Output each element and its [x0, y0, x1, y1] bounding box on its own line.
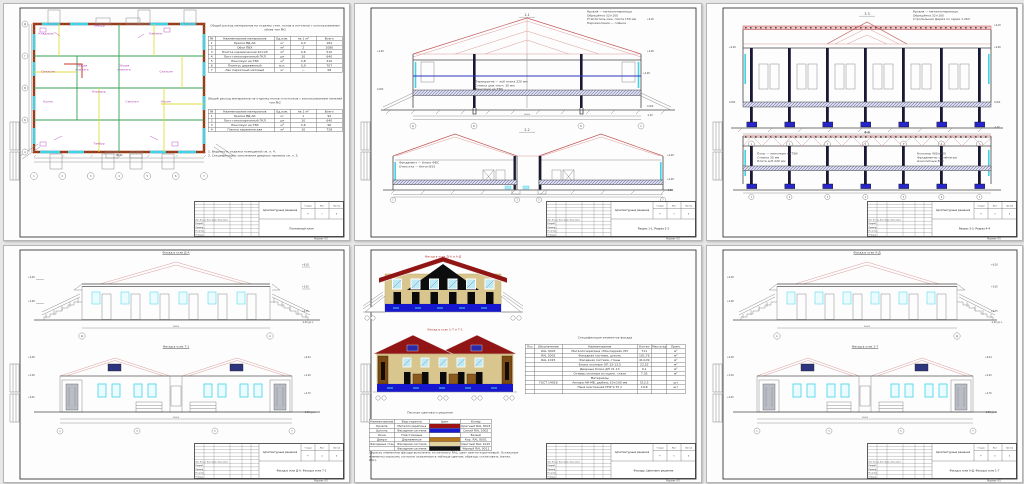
- svg-text:Б: Б: [24, 118, 26, 122]
- svg-text:Провер.: Провер.: [196, 469, 205, 471]
- materials-table-1: №Наименование материаловЕд.изм.на 1 м²Вс…: [208, 36, 343, 73]
- elevation-2-title: Фасад в осях 7-1: [140, 345, 212, 349]
- color-passport-table: НаименованиеВид отделкиЦветКолерКровляМе…: [369, 419, 492, 451]
- svg-text:Листов: Листов: [333, 205, 340, 207]
- svg-text:А: А: [24, 150, 26, 154]
- margin-stamps: [361, 122, 370, 180]
- sections-drawing: 3-3: [707, 4, 1022, 240]
- svg-text:+5,05: +5,05: [991, 286, 998, 289]
- porch-steps: [136, 402, 216, 412]
- margin-stamps: [10, 122, 19, 180]
- svg-text:Н.контр.: Н.контр.: [196, 473, 205, 475]
- title-block: Изм. Кол.уч. Лист №док. Подп. Дата Разра…: [546, 443, 696, 479]
- svg-text:+2,98: +2,98: [643, 72, 650, 75]
- svg-text:Стадия: Стадия: [977, 447, 984, 449]
- svg-text:Стадия: Стадия: [977, 205, 984, 207]
- svg-text:Утверд.: Утверд.: [869, 234, 877, 236]
- svg-text:Н.контр.: Н.контр.: [196, 231, 205, 233]
- svg-text:Листов: Листов: [685, 447, 692, 449]
- facade-spec-table: ПозОбозначениеНаименованиеКол-воМасса ед…: [525, 344, 686, 394]
- section-dim: 24000: [524, 114, 531, 116]
- margin-stamps: [713, 364, 722, 422]
- porch-steps: [827, 402, 903, 412]
- sheet-sections-3-4: 3-3: [706, 3, 1023, 241]
- title-block: Изм. Кол.уч. Лист №док. Подп. Дата Разра…: [194, 201, 344, 237]
- svg-text:+4,48: +4,48: [28, 356, 35, 359]
- svg-text:Утверд.: Утверд.: [196, 476, 204, 478]
- svg-text:Провер.: Провер.: [196, 227, 205, 229]
- room-label: Тамбур: [88, 24, 110, 28]
- margin-stamps: [713, 122, 722, 180]
- svg-text:Разраб.: Разраб.: [196, 464, 204, 467]
- svg-text:Стадия: Стадия: [656, 447, 663, 449]
- elevation-1-title: Фасад в осях А-Д: [831, 251, 903, 255]
- format-label: Формат А3: [314, 238, 328, 240]
- section-1-ground: [381, 93, 675, 114]
- foundation-note: Фундамент — блоки ФБС Отмостка — бетон В…: [399, 161, 454, 169]
- section-4-axes: 12 34 56 7: [749, 194, 982, 199]
- svg-text:Разраб.: Разраб.: [869, 464, 877, 467]
- sheet-elevations-ad: 36000 АД +4,48+2,98 +6,18+5,05 +0,75-1,2…: [706, 245, 1023, 483]
- svg-text:36000: 36000: [173, 326, 180, 328]
- svg-text:Утверд.: Утверд.: [869, 476, 877, 478]
- svg-text:+2,98: +2,98: [727, 300, 734, 303]
- plan-notes: 1. Ведомость отделки помещений см. л. 4.…: [208, 150, 342, 158]
- svg-text:Изм. Кол.уч. Лист №док. Подп.: Изм. Кол.уч. Лист №док. Подп. Дата: [869, 460, 901, 463]
- room-label: Кабинет: [145, 32, 167, 36]
- section-3-roof: [743, 22, 991, 44]
- svg-text:-1,20 ур.з.: -1,20 ур.з.: [991, 321, 1003, 324]
- section-label-2: 4-4: [864, 131, 869, 135]
- format-label: Формат А3: [666, 238, 680, 240]
- svg-text:Архитектурные решения: Архитектурные решения: [615, 450, 650, 454]
- svg-text:Поэтажный план: Поэтажный план: [289, 227, 313, 231]
- room-label: Кухня: [155, 100, 177, 104]
- title-block: Изм. Кол.уч. Лист №док. Подп. Дата Разра…: [194, 443, 344, 479]
- elevation-marks: +6,18+4,48 +2,980,000 -1,20 +4,480,000: [377, 18, 654, 117]
- svg-text:Листов: Листов: [333, 447, 340, 449]
- svg-text:Н.контр.: Н.контр.: [548, 231, 557, 233]
- stairs-right: [501, 292, 523, 312]
- svg-text:+4,48: +4,48: [667, 154, 674, 157]
- side-stairs-right: [270, 294, 310, 320]
- svg-text:Листов: Листов: [1006, 205, 1013, 207]
- axis-grid-bottom: 12 34 56 7: [31, 173, 208, 180]
- svg-text:Д: Д: [412, 125, 414, 128]
- svg-text:А: А: [269, 334, 271, 338]
- svg-text:-1,20 ур.з.: -1,20 ур.з.: [304, 411, 316, 414]
- room-label: Спальня: [37, 70, 59, 74]
- svg-text:-1,20: -1,20: [667, 189, 673, 192]
- svg-text:36000: 36000: [173, 417, 180, 419]
- floor-note: Полы — линолеум на ТЗИ Стяжка 30 мм Плит…: [757, 152, 817, 163]
- svg-text:Разраб.: Разраб.: [196, 222, 204, 225]
- svg-text:+4,20: +4,20: [304, 374, 311, 377]
- svg-text:Утверд.: Утверд.: [196, 234, 204, 236]
- svg-text:0,000: 0,000: [729, 101, 736, 104]
- svg-text:Д: Д: [24, 22, 26, 26]
- svg-text:Провер.: Провер.: [869, 469, 878, 471]
- svg-text:Архитектурные решения: Архитектурные решения: [263, 450, 298, 454]
- svg-text:+6,44: +6,44: [304, 356, 311, 359]
- svg-text:+4,48: +4,48: [727, 356, 734, 359]
- stairs-left: [363, 292, 385, 312]
- side-stairs-left: [42, 294, 82, 320]
- svg-text:+0,45: +0,45: [28, 396, 35, 399]
- svg-text:Н.контр.: Н.контр.: [869, 231, 878, 233]
- format-label: Формат А3: [314, 480, 328, 482]
- color-facade-2: [373, 335, 517, 400]
- sheet-floor-plan: 36000 12 34 56 7 ДГ ВБ А: [3, 3, 350, 241]
- svg-text:-1,20 ур.з.: -1,20 ур.з.: [302, 321, 314, 324]
- svg-text:Провер.: Провер.: [548, 227, 557, 229]
- room-label: Тамбур: [88, 142, 110, 146]
- svg-text:Фасад в осях Д-А. Фасад в осях: Фасад в осях Д-А. Фасад в осях 7-1: [277, 469, 327, 473]
- svg-text:Фасады. Цветовое решение: Фасады. Цветовое решение: [634, 469, 674, 473]
- elevation-2: 36000 13 57 +4,48+3,09 +0,45 +6,44+4,20 …: [28, 356, 320, 434]
- drawing-set-canvas: 36000 12 34 56 7 ДГ ВБ А: [0, 0, 1024, 484]
- svg-text:Разраб.: Разраб.: [869, 222, 877, 225]
- svg-text:Стадия: Стадия: [304, 447, 311, 449]
- section-label-2: 2-2: [524, 128, 529, 132]
- materials-table-2: №Наименование материаловЕд.изм.на 1 м²Вс…: [208, 109, 343, 132]
- section-2-roof: [393, 134, 663, 156]
- room-label: Коридор: [88, 90, 110, 94]
- svg-text:Архитектурные решения: Архитектурные решения: [936, 208, 971, 212]
- svg-text:+4,48: +4,48: [647, 50, 654, 53]
- svg-text:Утверд.: Утверд.: [548, 476, 556, 478]
- column-note: Колонны 400×400 Фундаменты столбчатые мо…: [917, 152, 977, 163]
- elevation-2: 36000 13 57 +4,48+3,09 +0,45 +6,44+4,20 …: [727, 356, 997, 434]
- roof-note: Кровля — металлочерепица Обрешётка 32×10…: [587, 10, 662, 25]
- svg-text:36000: 36000: [862, 417, 869, 419]
- svg-text:Разрез 1-1. Разрез 2-2: Разрез 1-1. Разрез 2-2: [638, 227, 669, 231]
- side-stairs-right: [957, 294, 995, 320]
- svg-text:Изм. Кол.уч. Лист №док. Подп.: Изм. Кол.уч. Лист №док. Подп. Дата: [548, 218, 580, 221]
- elevation-1: 36000 АД +4,48+2,98 +6,18+5,05 +0,75-1,2…: [727, 262, 1003, 339]
- margin-stamps: [10, 364, 19, 422]
- elevation-1: 36000 ДА +4,48+2,98 +6,18+5,05 +0,75-1,2…: [28, 262, 320, 339]
- svg-text:+2,98: +2,98: [667, 178, 674, 181]
- svg-text:Архитектурные решения: Архитектурные решения: [936, 450, 971, 454]
- materials-table-2-title: Общий расход материалов на отделку полов…: [207, 97, 343, 105]
- sheet-elevations-da: 36000 ДА +4,48+2,98 +6,18+5,05 +0,75-1,2…: [3, 245, 350, 483]
- total-dimension: 36000: [116, 154, 124, 157]
- room-label: Кухня: [37, 100, 59, 104]
- svg-text:+5,05: +5,05: [302, 286, 309, 289]
- svg-text:Листов: Листов: [685, 205, 692, 207]
- foundation-pads: [747, 122, 985, 127]
- svg-text:0,000: 0,000: [647, 105, 654, 108]
- svg-text:Разрез 3-3. Разрез 4-4: Разрез 3-3. Разрез 4-4: [959, 227, 990, 231]
- svg-text:Изм. Кол.уч. Лист №док. Подп.: Изм. Кол.уч. Лист №док. Подп. Дата: [196, 218, 228, 221]
- svg-text:36000: 36000: [864, 326, 871, 328]
- svg-text:Разраб.: Разраб.: [548, 464, 556, 467]
- section-2-ground: [383, 190, 673, 194]
- svg-text:+6,18: +6,18: [994, 24, 1001, 27]
- room-label: Общая комната: [113, 64, 135, 72]
- svg-text:Стадия: Стадия: [304, 205, 311, 207]
- spec-table-title: Спецификация элементов фасада: [525, 336, 685, 340]
- svg-text:Д: Д: [956, 334, 958, 338]
- svg-text:+4,48: +4,48: [28, 276, 35, 279]
- svg-text:Архитектурные решения: Архитектурные решения: [263, 208, 298, 212]
- title-block: Изм. Кол.уч. Лист №док. Подп. Дата Разра…: [546, 201, 696, 237]
- svg-text:+3,09: +3,09: [28, 374, 35, 377]
- side-stairs-left: [739, 294, 777, 320]
- room-label: Кладовая: [35, 32, 57, 36]
- svg-text:+0,75: +0,75: [302, 310, 309, 313]
- svg-text:+2,70: +2,70: [304, 392, 311, 395]
- sheet-sections-1-2: 1-1: [354, 3, 702, 241]
- room-label: Спальня: [155, 70, 177, 74]
- sections-drawing: 1-1: [355, 4, 701, 240]
- svg-text:+4,48: +4,48: [727, 276, 734, 279]
- svg-text:Д: Д: [81, 334, 83, 338]
- section-label-1: 3-3: [864, 12, 869, 16]
- elevation-1-title: Фасад в осях Д-А: [140, 251, 212, 255]
- svg-text:Изм. Кол.уч. Лист №док. Подп.: Изм. Кол.уч. Лист №док. Подп. Дата: [869, 218, 901, 221]
- axis-grid-left: ДГ ВБ А: [22, 21, 28, 155]
- svg-text:0,000: 0,000: [377, 88, 384, 91]
- svg-text:0,000: 0,000: [994, 101, 1001, 104]
- svg-text:Изм. Кол.уч. Лист №док. Подп.: Изм. Кол.уч. Лист №док. Подп. Дата: [548, 460, 580, 463]
- svg-text:+6,18: +6,18: [302, 264, 309, 267]
- title-block: Изм. Кол.уч. Лист №док. Подп. Дата Разра…: [867, 201, 1017, 237]
- facade-2-title: Фасад в осях 1-7 и 7-1: [395, 328, 495, 332]
- format-label: Формат А3: [987, 238, 1001, 240]
- room-label: Общая комната: [71, 64, 93, 72]
- elevations-drawing: 36000 ДА +4,48+2,98 +6,18+5,05 +0,75-1,2…: [4, 246, 349, 482]
- facade-note: Окраску элементов фасада выполнять по ка…: [369, 451, 519, 462]
- svg-text:Н.контр.: Н.контр.: [548, 473, 557, 475]
- svg-text:Листов: Листов: [1006, 447, 1013, 449]
- svg-text:Провер.: Провер.: [869, 227, 878, 229]
- svg-text:+2,70: +2,70: [985, 392, 992, 395]
- color-passport-title: Паспорт цветового решения: [369, 411, 491, 415]
- title-block: Изм. Кол.уч. Лист №док. Подп. Дата Разра…: [867, 443, 1017, 479]
- svg-text:+4,20: +4,20: [985, 374, 992, 377]
- svg-text:-1,20 ур.з.: -1,20 ур.з.: [985, 411, 997, 414]
- svg-text:А: А: [776, 334, 778, 338]
- svg-text:Архитектурные решения: Архитектурные решения: [615, 208, 650, 212]
- roof-note: Кровля — металлочерепица Обрешётка 32×10…: [913, 10, 988, 21]
- floor-note: Перекрытие — ж/б плита 220 мм Стяжка цем…: [475, 80, 550, 91]
- svg-text:+4,48: +4,48: [729, 46, 736, 49]
- svg-text:+6,18: +6,18: [991, 264, 998, 267]
- svg-text:-1,20: -1,20: [994, 126, 1000, 129]
- svg-text:-1,20: -1,20: [647, 114, 653, 117]
- svg-text:+4,48: +4,48: [994, 46, 1001, 49]
- facade-1-title: Фасад в осях Д-А и А-Д: [393, 255, 493, 259]
- svg-text:Разраб.: Разраб.: [548, 222, 556, 225]
- svg-text:+4,48: +4,48: [377, 50, 384, 53]
- format-label: Формат А3: [987, 480, 1001, 482]
- svg-text:Фасад в осях А-Д. Фасад в осях: Фасад в осях А-Д. Фасад в осях 1-7: [950, 469, 1000, 473]
- svg-text:+0,75: +0,75: [991, 310, 998, 313]
- svg-text:+0,45: +0,45: [727, 396, 734, 399]
- svg-text:Утверд.: Утверд.: [548, 234, 556, 236]
- svg-text:Стадия: Стадия: [656, 205, 663, 207]
- section-label-1: 1-1: [524, 13, 529, 17]
- materials-table-1-title: Общий расход материалов на отделку стен,…: [207, 24, 343, 32]
- svg-text:Изм. Кол.уч. Лист №док. Подп.: Изм. Кол.уч. Лист №док. Подп. Дата: [196, 460, 228, 463]
- svg-text:Н.контр.: Н.контр.: [869, 473, 878, 475]
- elevation-2-title: Фасад в осях 1-7: [829, 345, 901, 349]
- svg-text:Провер.: Провер.: [548, 469, 557, 471]
- svg-text:+6,44: +6,44: [985, 356, 992, 359]
- svg-text:+3,09: +3,09: [727, 374, 734, 377]
- svg-text:+2,98: +2,98: [28, 300, 35, 303]
- sheet-color-facades: Изм. Кол.уч. Лист №док. Подп. Дата Разра…: [354, 245, 702, 483]
- svg-text:В: В: [24, 86, 26, 90]
- elevation-marks-2: +4,48 +2,98 -1,20: [667, 154, 674, 192]
- format-label: Формат А3: [666, 480, 680, 482]
- elevations-drawing: 36000 АД +4,48+2,98 +6,18+5,05 +0,75-1,2…: [707, 246, 1022, 482]
- room-label: Санузел: [121, 100, 143, 104]
- color-facade-1: [363, 257, 523, 320]
